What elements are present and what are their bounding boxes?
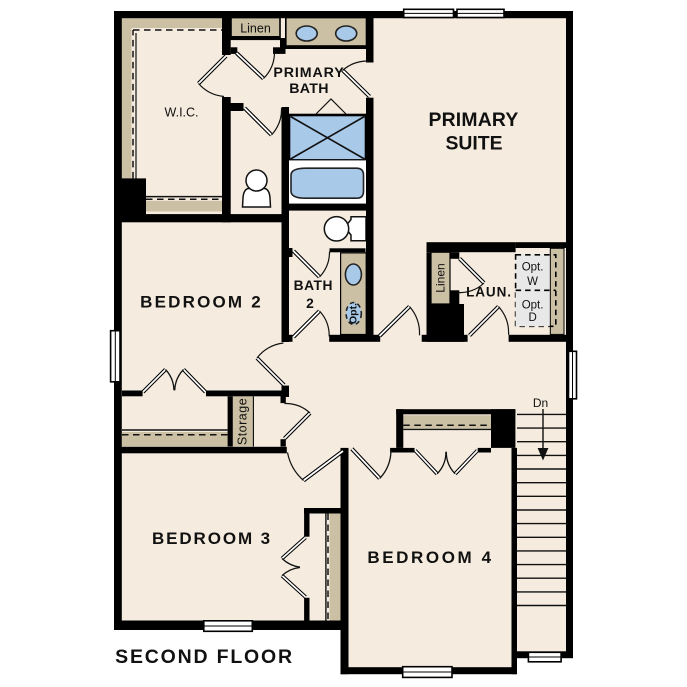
svg-text:BATH: BATH — [294, 278, 333, 293]
svg-text:Linen: Linen — [434, 263, 448, 292]
svg-text:SECOND FLOOR: SECOND FLOOR — [115, 646, 294, 668]
svg-text:2: 2 — [306, 296, 314, 311]
svg-text:PRIMARY: PRIMARY — [273, 65, 344, 81]
svg-text:Linen: Linen — [240, 22, 271, 36]
svg-text:SUITE: SUITE — [445, 132, 502, 154]
svg-text:Opt.: Opt. — [522, 300, 544, 312]
svg-text:BATH: BATH — [289, 81, 329, 97]
svg-text:BEDROOM 4: BEDROOM 4 — [367, 548, 493, 567]
svg-text:W: W — [527, 276, 538, 288]
svg-text:Opt.: Opt. — [348, 303, 360, 324]
svg-text:W.I.C.: W.I.C. — [164, 106, 198, 120]
svg-text:Dn: Dn — [533, 396, 548, 410]
svg-text:BEDROOM 2: BEDROOM 2 — [140, 293, 263, 312]
svg-text:Storage: Storage — [236, 398, 250, 445]
svg-text:D: D — [528, 312, 536, 324]
svg-text:BEDROOM 3: BEDROOM 3 — [152, 529, 272, 548]
svg-text:LAUN.: LAUN. — [466, 285, 512, 300]
svg-text:Opt.: Opt. — [522, 262, 544, 274]
svg-text:PRIMARY: PRIMARY — [428, 109, 518, 131]
